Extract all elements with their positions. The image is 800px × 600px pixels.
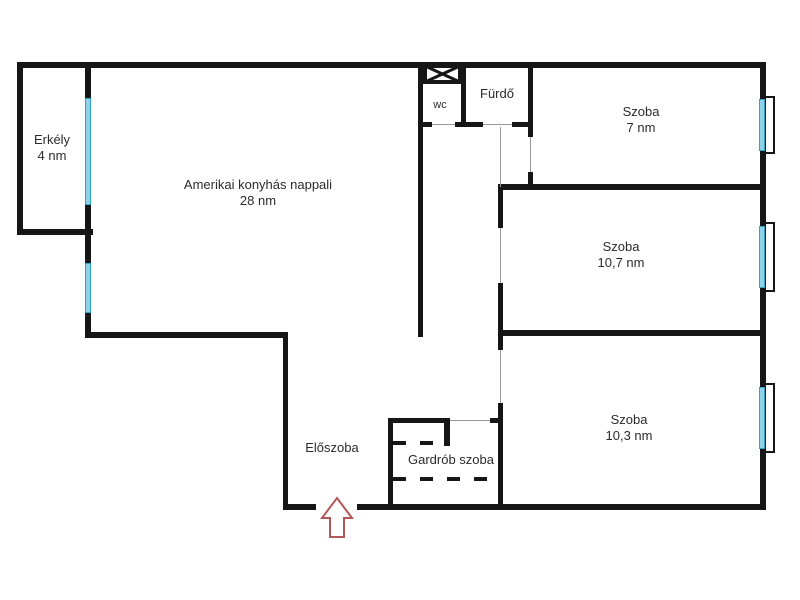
room-label-wardrobe: Gardrób szoba: [401, 452, 501, 468]
room-name: Erkély: [34, 132, 70, 147]
room-name: Gardrób szoba: [408, 452, 494, 467]
room-name: Előszoba: [305, 440, 358, 455]
room-name: Fürdő: [480, 86, 514, 101]
room-label-balcony: Erkély 4 nm: [18, 132, 86, 164]
room-name: Szoba: [603, 239, 640, 254]
room-label-bathroom: Fürdő: [462, 86, 532, 102]
room-name: Szoba: [611, 412, 648, 427]
plan-symbols: [0, 0, 800, 600]
room-area: 10,3 nm: [589, 428, 669, 444]
entrance-arrow-icon: [322, 498, 352, 537]
floor-plan-canvas: Erkély 4 nm Amerikai konyhás nappali 28 …: [0, 0, 800, 600]
room-label-room2: Szoba 10,7 nm: [581, 239, 661, 271]
room-area: 10,7 nm: [581, 255, 661, 271]
room-label-wc: wc: [428, 99, 452, 111]
room-area: 28 nm: [158, 193, 358, 209]
room-area: 7 nm: [601, 120, 681, 136]
room-label-hallway: Előszoba: [292, 440, 372, 456]
room-name: Amerikai konyhás nappali: [184, 177, 332, 192]
room-label-room1: Szoba 7 nm: [601, 104, 681, 136]
room-area: 4 nm: [18, 148, 86, 164]
room-label-living: Amerikai konyhás nappali 28 nm: [158, 177, 358, 209]
room-name: Szoba: [623, 104, 660, 119]
shaft-icon: [425, 66, 460, 82]
room-label-room3: Szoba 10,3 nm: [589, 412, 669, 444]
room-name: wc: [433, 99, 446, 111]
